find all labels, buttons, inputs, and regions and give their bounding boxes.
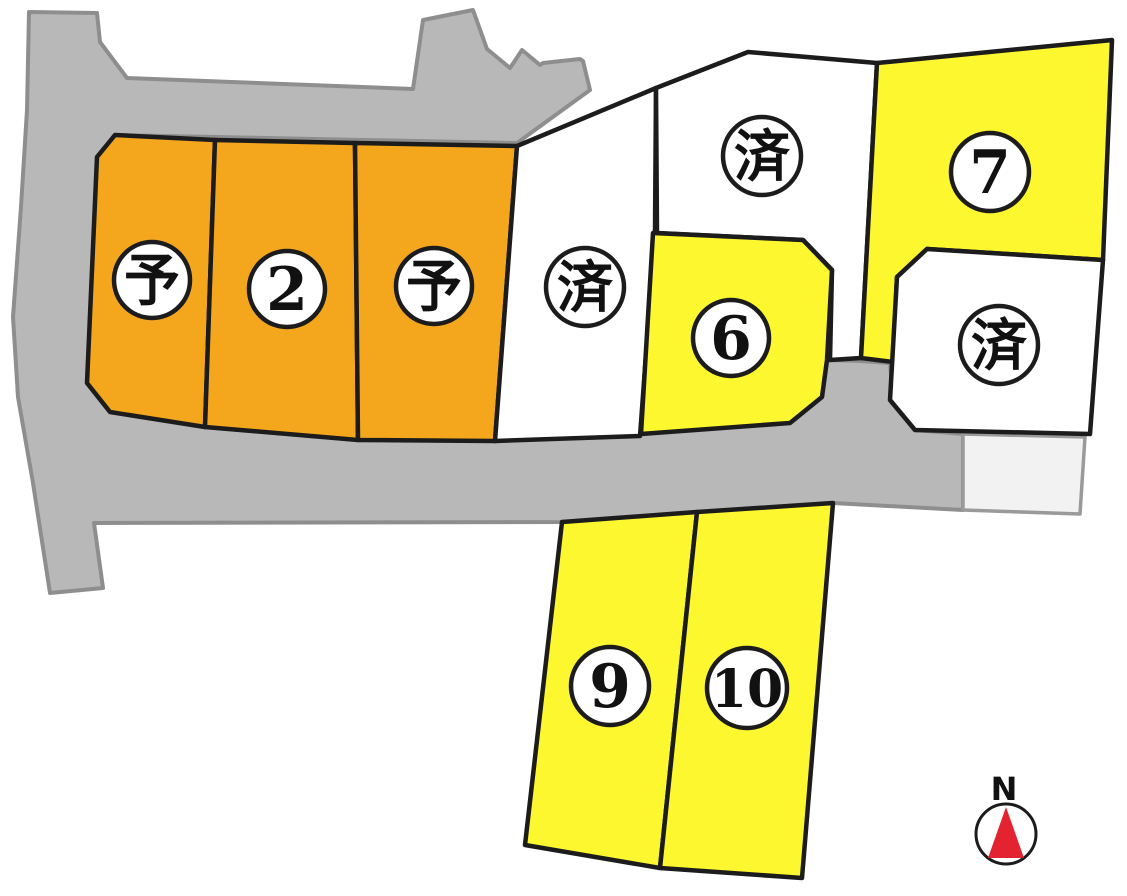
- lot-4-label: 済: [557, 256, 614, 321]
- lot-3-label: 予: [406, 255, 462, 320]
- lot-3[interactable]: 予: [355, 143, 517, 441]
- lot-1[interactable]: 予: [87, 135, 215, 427]
- lot-10-label: 10: [711, 659, 783, 720]
- compass: N: [976, 770, 1036, 864]
- lot-7-label: 7: [969, 138, 1011, 208]
- lot-6-label: 6: [710, 304, 752, 374]
- lot-8-label: 済: [971, 314, 1028, 379]
- lot-2-label: 2: [266, 255, 308, 325]
- lot-8[interactable]: 済: [890, 249, 1103, 434]
- lot-5-label: 済: [734, 125, 791, 190]
- lot-2[interactable]: 2: [205, 140, 358, 440]
- parcel-unlabeled: [963, 434, 1085, 514]
- compass-north-label: N: [991, 770, 1018, 808]
- lot-map-canvas: 予 2 予 済 済 6 7 済: [0, 0, 1127, 896]
- lot-9-label: 9: [589, 652, 631, 722]
- lot-1-label: 予: [124, 249, 180, 314]
- lot-6[interactable]: 6: [641, 233, 832, 434]
